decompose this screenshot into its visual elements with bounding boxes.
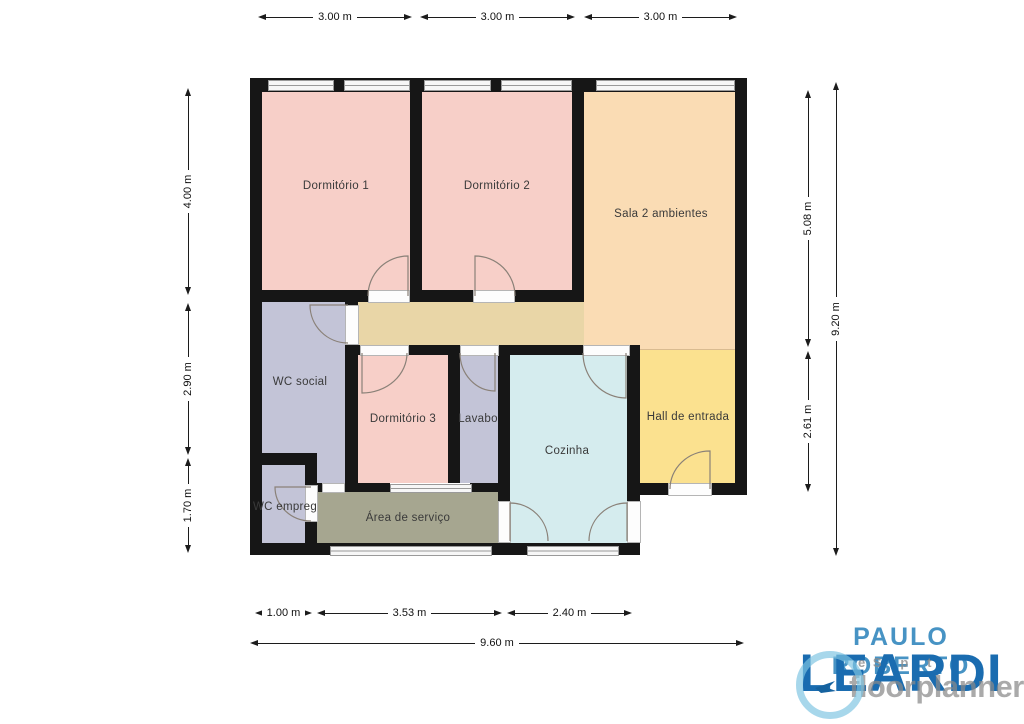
door-opening [627,501,641,543]
wall [262,290,368,302]
window [268,80,334,91]
dim-label: 2.90 m [182,357,195,401]
floorplanner-bird-icon [814,679,838,695]
room-label-wc-empregada: WC empreg [253,501,317,513]
dim-left-2: 2.90 m [182,303,195,455]
wall [250,78,262,555]
wall [513,290,584,302]
window [424,80,491,91]
door-opening [360,345,409,356]
room-label-dormitorio-2: Dormitório 2 [464,180,530,192]
door-opening [460,345,499,356]
door-opening [345,305,359,345]
wall [345,345,360,355]
room-label-wc-social: WC social [273,376,327,388]
room-label-area-servico: Área de serviço [366,512,450,524]
dim-bottom-2: 3.53 m [317,607,502,620]
sala-hall-boundary [640,349,735,350]
room-label-sala: Sala 2 ambientes [614,208,708,220]
dim-right-2: 2.61 m [802,351,815,492]
dim-bottom-3: 2.40 m [507,607,632,620]
dim-bottom-1: 1.00 m [255,607,312,620]
room-label-dormitorio-3: Dormitório 3 [370,413,436,425]
dim-label: 3.00 m [313,11,357,24]
window [390,484,472,493]
window [330,546,492,556]
dim-label: 9.20 m [830,297,843,341]
wall [343,483,390,492]
dim-label: 3.00 m [476,11,520,24]
floorplanner-watermark-text: floorplanner [849,669,1024,705]
dim-label: 5.08 m [802,197,815,241]
room-sala-floor [584,92,735,350]
wall [572,78,584,302]
wall [305,453,317,485]
dim-label: 2.40 m [548,607,592,620]
door-opening [322,483,345,493]
room-label-hall: Hall de entrada [647,411,730,423]
corridor-floor [358,302,584,345]
room-wc-social-floor [317,453,345,483]
room-label-dormitorio-1: Dormitório 1 [303,180,369,192]
door-opening [498,501,511,543]
dim-top-1: 3.00 m [258,11,412,24]
wall [735,78,747,495]
dim-top-3: 3.00 m [584,11,737,24]
window [501,80,572,91]
dim-label: 9.60 m [475,637,519,650]
window [596,80,735,91]
window [527,546,619,556]
dim-left-1: 4.00 m [182,88,195,295]
window [344,80,410,91]
floorplan-page: Dormitório 1 Dormitório 2 Sala 2 ambient… [0,0,1024,724]
dim-right-1: 5.08 m [802,90,815,347]
dim-left-3: 1.70 m [182,458,195,553]
room-label-cozinha: Cozinha [545,445,589,457]
wall [408,290,473,302]
dim-label: 1.70 m [182,484,195,528]
dim-label: 2.61 m [802,400,815,444]
door-opening [473,290,515,303]
wall [470,483,498,492]
dim-bottom-total: 9.60 m [250,637,744,650]
dim-label: 3.53 m [388,607,432,620]
dim-label: 3.00 m [639,11,683,24]
wall [305,520,317,555]
dim-label: 4.00 m [182,170,195,214]
dim-top-2: 3.00 m [420,11,575,24]
dim-right-total: 9.20 m [830,82,843,556]
dim-label: 1.00 m [262,607,306,620]
door-opening [583,345,630,356]
door-opening [368,290,410,303]
wall [410,78,422,302]
wall [710,483,747,495]
room-label-lavabo: Lavabo [458,413,498,425]
watermark-fragment-text: e S p t [858,655,933,670]
door-opening [668,483,712,496]
wall [407,345,460,355]
